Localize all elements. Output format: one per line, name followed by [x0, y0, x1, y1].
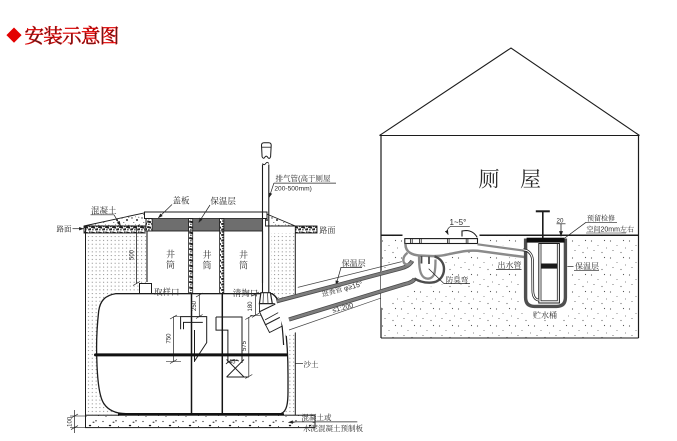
svg-text:筒: 筒: [239, 259, 248, 272]
svg-text:路面: 路面: [57, 224, 72, 235]
svg-text:屋: 屋: [520, 164, 541, 194]
svg-text:1~5°: 1~5°: [450, 218, 467, 227]
svg-text:盖板: 盖板: [173, 195, 191, 207]
svg-text:厕: 厕: [479, 164, 500, 194]
svg-text:保温层: 保温层: [210, 195, 236, 207]
svg-text:180: 180: [248, 301, 254, 312]
svg-text:排气管(高于厕屋: 排气管(高于厕屋: [276, 173, 331, 184]
svg-text:750: 750: [167, 333, 173, 344]
svg-text:100: 100: [68, 416, 74, 427]
svg-text:筒: 筒: [203, 259, 212, 272]
svg-text:筒: 筒: [166, 258, 175, 271]
svg-text:200-500mm): 200-500mm): [274, 185, 311, 192]
svg-text:路面: 路面: [319, 225, 335, 236]
svg-text:安装示意图: 安装示意图: [25, 21, 119, 49]
svg-text:贮水桶: 贮水桶: [533, 310, 557, 321]
svg-text:取样口: 取样口: [154, 286, 180, 298]
svg-text:水泥混凝土预制板: 水泥混凝土预制板: [303, 423, 363, 434]
svg-text:沙土: 沙土: [304, 359, 319, 370]
svg-text:575: 575: [242, 340, 248, 351]
svg-text:500: 500: [130, 249, 136, 260]
svg-text:45°: 45°: [229, 360, 239, 366]
svg-text:250: 250: [192, 300, 198, 311]
svg-text:清掏口: 清掏口: [233, 287, 259, 299]
